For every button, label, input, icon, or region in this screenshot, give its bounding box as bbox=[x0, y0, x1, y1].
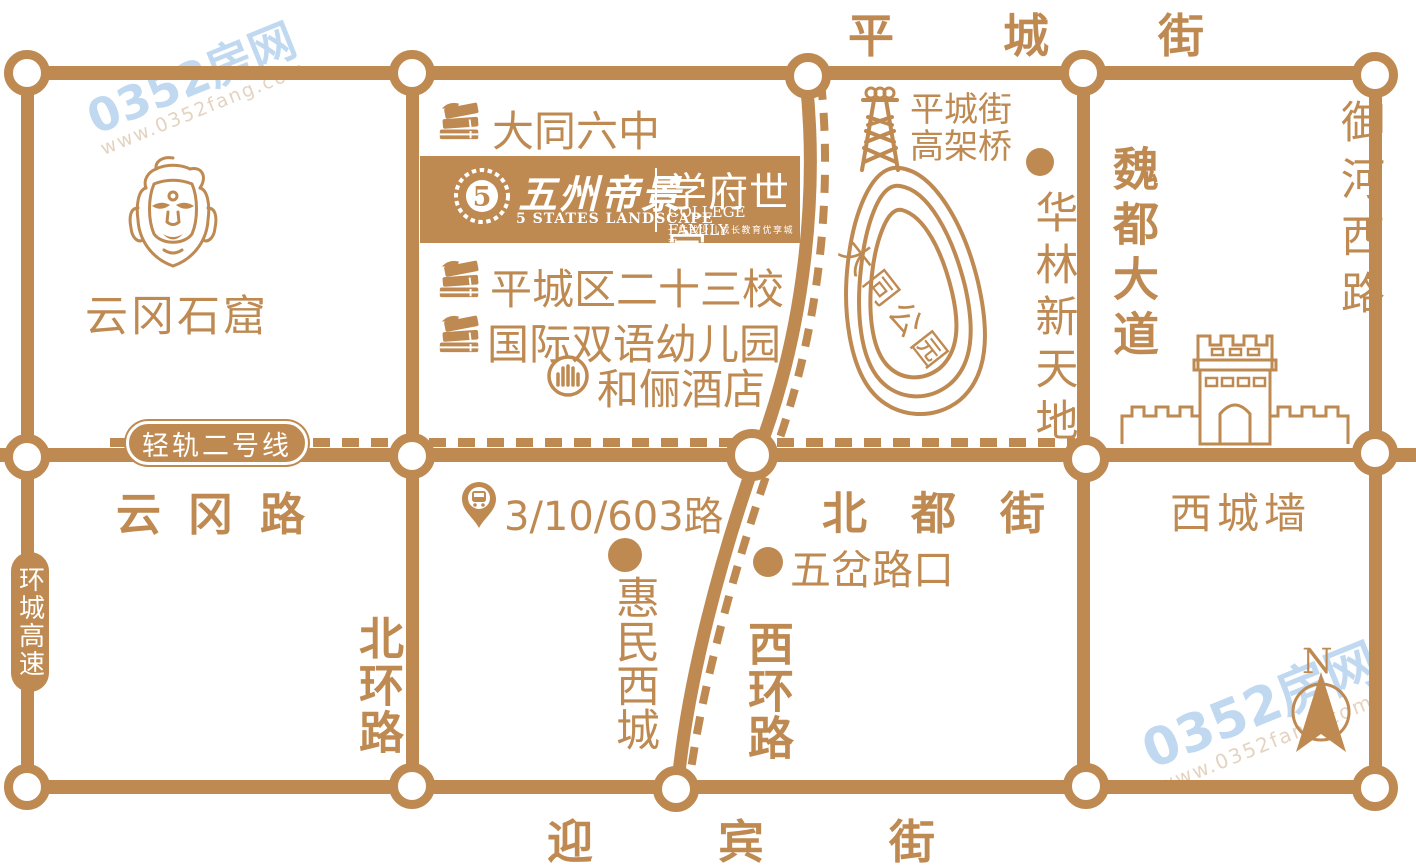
hotel-icon bbox=[545, 353, 591, 399]
street-label-yungang-road: 云冈路 bbox=[116, 478, 332, 543]
street-label-beidu: 北都街 bbox=[822, 477, 1089, 542]
poi-dot-wucha bbox=[753, 547, 783, 577]
poi-label-hualin: 华林新天地 bbox=[1022, 190, 1084, 450]
poi-label-datong6: 大同六中 bbox=[492, 98, 660, 159]
intersection-node bbox=[389, 433, 435, 479]
logo-tagline: 一站式少儿成长教育优享城邦 bbox=[668, 223, 800, 249]
street-label-xihuan: 西环路 bbox=[735, 620, 801, 761]
viaduct-tower-icon bbox=[849, 84, 911, 172]
books-icon bbox=[436, 308, 484, 356]
logo-divider bbox=[655, 168, 657, 232]
intersection-node bbox=[389, 50, 435, 96]
buddha-icon bbox=[118, 146, 228, 278]
project-logo-banner: 5 五州帝景 5 STATES LANDSCAPE 学府世家 COLLEGE F… bbox=[420, 156, 800, 243]
street-label-yuhe: 御河西路 bbox=[1326, 99, 1390, 327]
city-wall-icon bbox=[1120, 334, 1350, 446]
street-label-pingcheng: 平城街 bbox=[848, 0, 1313, 66]
poi-dot-hualin bbox=[1026, 148, 1054, 176]
seal-glyph: 5 bbox=[473, 182, 492, 213]
street-label-yingbin: 迎宾街 bbox=[547, 806, 1060, 866]
compass-icon bbox=[1283, 668, 1361, 756]
poi-label-huimin: 惠民西城 bbox=[601, 575, 665, 751]
intersection-node bbox=[1352, 430, 1398, 476]
intersection-node bbox=[1352, 52, 1398, 98]
street-label-weidu: 魏都大道 bbox=[1100, 145, 1166, 365]
street-label-xichengqiang: 西城墙 bbox=[1170, 480, 1311, 541]
huancheng-expressway-pill: 环城高速 bbox=[11, 552, 49, 692]
poi-dot-huimin bbox=[608, 538, 642, 572]
poi-label-wucha: 五岔路口 bbox=[790, 536, 954, 596]
intersection-node bbox=[1063, 763, 1109, 809]
intersection-node bbox=[785, 53, 831, 99]
project-seal-icon: 5 bbox=[452, 166, 512, 226]
huancheng-expressway-label: 环城高速 bbox=[12, 566, 49, 678]
books-icon bbox=[436, 253, 484, 301]
poi-label-bus-routes: 3/10/603路 bbox=[504, 484, 724, 542]
bus-stop-pin-icon bbox=[460, 480, 498, 530]
intersection-node bbox=[1352, 765, 1398, 811]
intersection-node bbox=[726, 429, 778, 481]
landmark-label-yungang: 云冈石窟 bbox=[85, 282, 269, 344]
location-map: 0352房网 www.0352fang.com 0352房网 www.0352f… bbox=[0, 0, 1416, 866]
lightrail-line2-pill: 轻轨二号线 bbox=[126, 421, 308, 465]
intersection-node bbox=[4, 50, 50, 96]
lightrail-line2-label: 轻轨二号线 bbox=[142, 424, 292, 463]
intersection-node bbox=[4, 764, 50, 810]
poi-label-viaduct: 平城街高架桥 bbox=[910, 92, 1020, 166]
poi-label-hotel: 和俪酒店 bbox=[597, 356, 765, 417]
intersection-node bbox=[4, 434, 50, 480]
intersection-node bbox=[389, 763, 435, 809]
street-label-beihuan: 北环路 bbox=[345, 615, 410, 756]
books-icon bbox=[436, 95, 484, 143]
